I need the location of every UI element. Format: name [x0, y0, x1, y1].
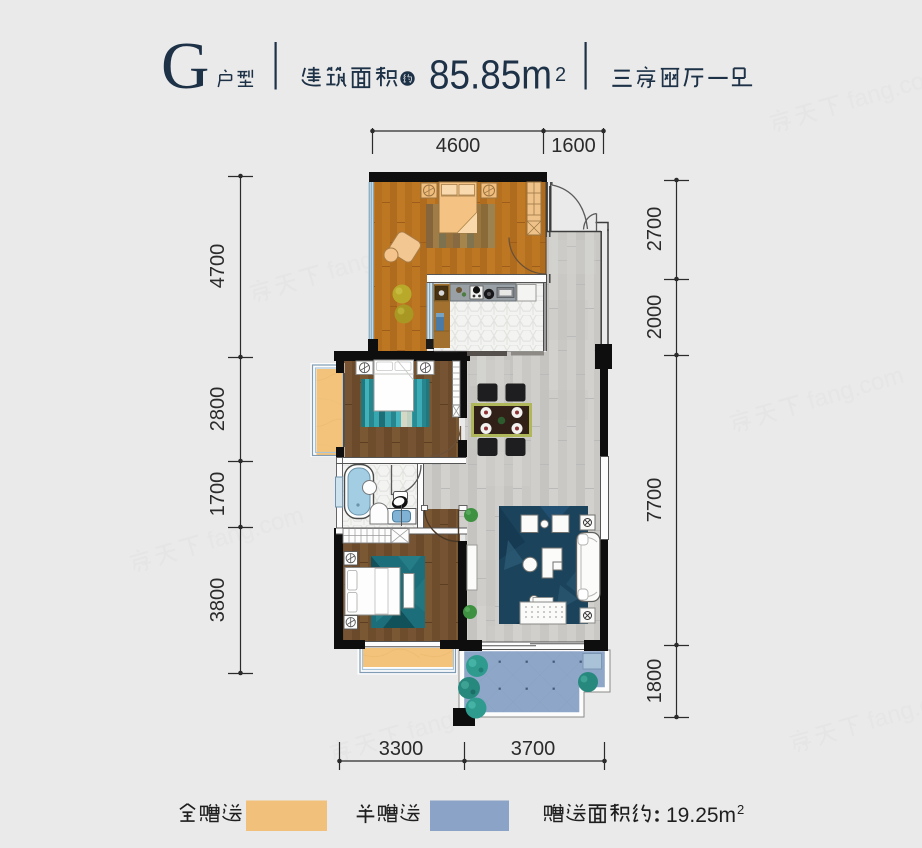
svg-text:4700: 4700 — [207, 244, 229, 289]
svg-text:85.85m: 85.85m — [429, 52, 552, 98]
svg-text:19.25m: 19.25m — [666, 804, 736, 827]
svg-text:2: 2 — [555, 64, 566, 86]
svg-text:1700: 1700 — [207, 472, 229, 517]
svg-text:1600: 1600 — [551, 135, 596, 157]
svg-text:3800: 3800 — [207, 578, 229, 623]
svg-text:2000: 2000 — [644, 295, 666, 340]
svg-text:2800: 2800 — [207, 387, 229, 432]
svg-text:G: G — [161, 29, 209, 103]
svg-text:3300: 3300 — [379, 738, 424, 760]
svg-text:3700: 3700 — [511, 738, 556, 760]
svg-text:2: 2 — [737, 802, 744, 817]
svg-text:1800: 1800 — [644, 659, 666, 704]
svg-text:4600: 4600 — [436, 135, 481, 157]
svg-text:7700: 7700 — [644, 478, 666, 523]
svg-text:2700: 2700 — [644, 207, 666, 252]
